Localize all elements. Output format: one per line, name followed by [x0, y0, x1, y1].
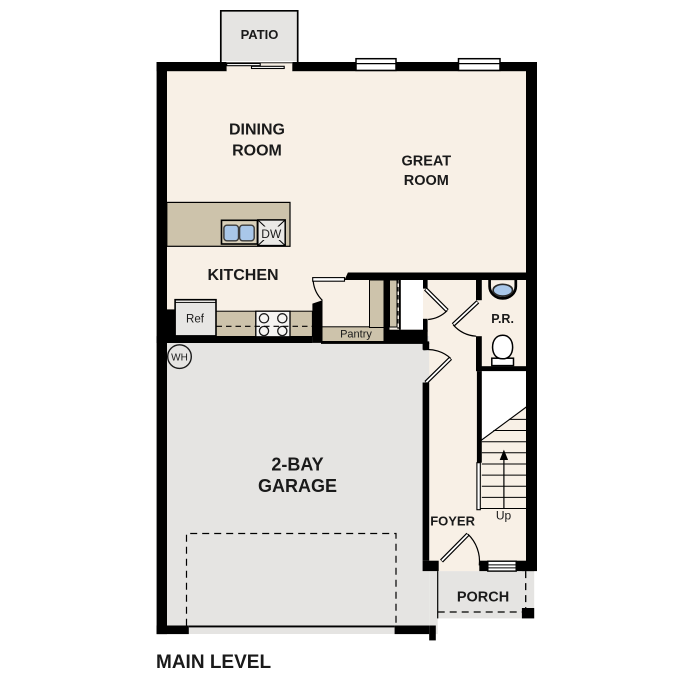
svg-text:GREAT: GREAT — [401, 154, 451, 170]
svg-text:GARAGE: GARAGE — [258, 476, 337, 496]
svg-text:Up: Up — [496, 508, 512, 522]
svg-text:DINING: DINING — [229, 122, 285, 139]
svg-text:PATIO: PATIO — [241, 27, 279, 42]
svg-text:Ref: Ref — [186, 314, 205, 326]
svg-text:Pantry: Pantry — [340, 329, 372, 341]
svg-text:WH: WH — [171, 353, 188, 364]
svg-text:DW: DW — [261, 227, 282, 241]
svg-text:KITCHEN: KITCHEN — [207, 267, 278, 284]
svg-text:PORCH: PORCH — [457, 590, 509, 606]
svg-text:2-BAY: 2-BAY — [271, 454, 323, 474]
svg-text:FOYER: FOYER — [430, 514, 475, 529]
svg-text:MAIN LEVEL: MAIN LEVEL — [156, 652, 271, 673]
svg-text:ROOM: ROOM — [404, 173, 449, 189]
svg-text:ROOM: ROOM — [232, 142, 282, 159]
svg-text:P.R.: P.R. — [491, 312, 514, 326]
